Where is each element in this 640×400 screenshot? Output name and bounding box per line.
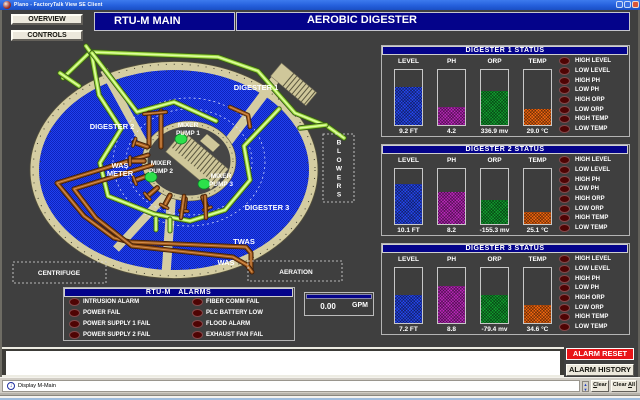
svg-text:METER: METER (107, 169, 134, 178)
svg-text:WAS: WAS (217, 258, 234, 267)
svg-text:MIXER: MIXER (178, 122, 199, 129)
svg-text:MIXER: MIXER (151, 160, 172, 167)
svg-text:W: W (336, 166, 343, 173)
svg-text:DIGESTER 3: DIGESTER 3 (245, 203, 290, 212)
svg-text:S: S (337, 192, 342, 199)
svg-text:R: R (337, 183, 342, 190)
svg-text:TWAS: TWAS (233, 237, 255, 246)
svg-text:MIXER: MIXER (211, 173, 232, 180)
svg-text:AERATION: AERATION (279, 269, 313, 276)
svg-text:DIGESTER 1: DIGESTER 1 (234, 83, 279, 92)
svg-text:O: O (336, 157, 341, 164)
svg-text:E: E (337, 174, 342, 181)
svg-text:L: L (337, 148, 341, 155)
svg-text:DIGESTER 2: DIGESTER 2 (90, 122, 135, 131)
svg-text:PUMP 2: PUMP 2 (149, 168, 173, 175)
svg-text:PUMP 1: PUMP 1 (176, 130, 200, 137)
svg-text:CENTRIFUGE: CENTRIFUGE (38, 270, 81, 277)
svg-text:PUMP 3: PUMP 3 (209, 181, 233, 188)
svg-text:B: B (337, 140, 342, 147)
